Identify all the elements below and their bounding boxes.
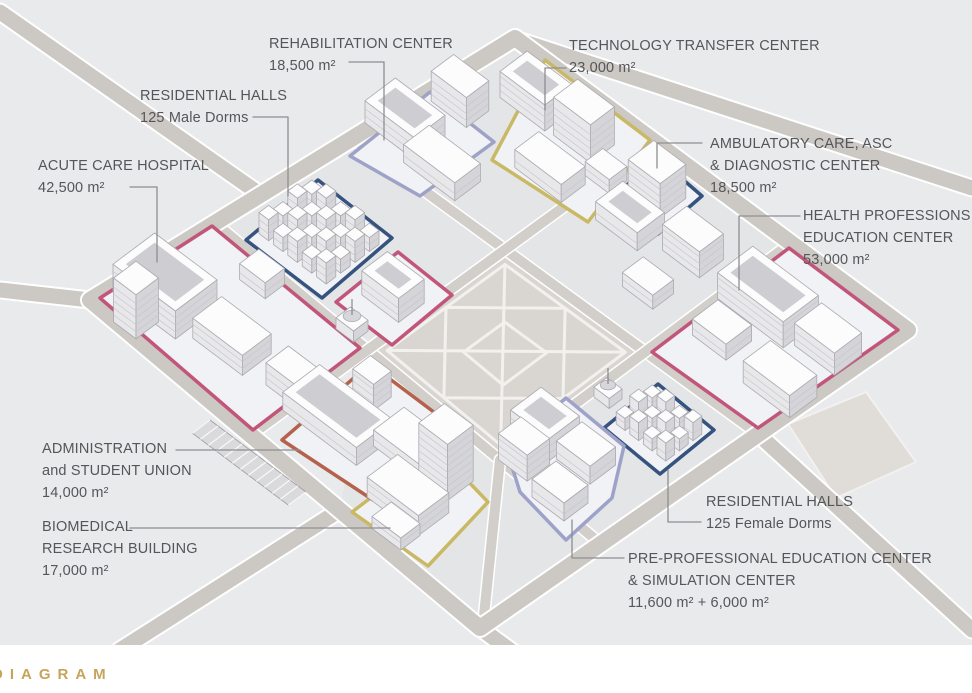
label-acute-care-hospital: ACUTE CARE HOSPITAL 42,500 m² [38,155,209,199]
label-administration-student-union: ADMIN­ISTRATION and STUDENT UNION 14,000… [42,438,192,504]
facility-name: REHABILITATION CENTER [269,33,453,55]
facility-name: ADMIN­ISTRATION [42,438,192,460]
label-technology-transfer-center: TECHNOLOGY TRANSFER CENTER 23,000 m² [569,35,820,79]
facility-name: and STUDENT UNION [42,460,192,482]
label-residential-halls-female: RESIDENTIAL HALLS 125 Female Dorms [706,491,853,535]
facility-area: 18,500 m² [269,55,453,77]
facility-name: & DIAGNOSTIC CENTER [710,155,892,177]
label-pre-professional-simulation: PRE-PROFESSIONAL EDUCATION CENTER & SIMU… [628,548,932,614]
facility-name: BIOMEDICAL [42,516,198,538]
label-ambulatory-care-asc-diagnostic: AMBULATORY CARE, ASC & DIAGNOSTIC CENTER… [710,133,892,199]
facility-area: 42,500 m² [38,177,209,199]
facility-area: 53,000 m² [803,249,971,271]
facility-area: 125 Female Dorms [706,513,853,535]
facility-name: & SIMULATION CENTER [628,570,932,592]
facility-area: 14,000 m² [42,482,192,504]
facility-area: 23,000 m² [569,57,820,79]
facility-area: 11,600 m² + 6,000 m² [628,592,932,614]
label-residential-halls-male: RESIDENTIAL HALLS 125 Male Dorms [140,85,287,129]
paper-margin-strip [0,645,972,693]
facility-area: 18,500 m² [710,177,892,199]
facility-area: 17,000 m² [42,560,198,582]
facility-name: AMBULATORY CARE, ASC [710,133,892,155]
facility-name: EDUCATION CENTER [803,227,971,249]
facility-name: PRE-PROFESSIONAL EDUCATION CENTER [628,548,932,570]
campus-master-plan-diagram: REHABILITATION CENTER 18,500 m² TECHNOLO… [0,0,972,693]
label-biomedical-research-building: BIOMEDICAL RESEARCH BUILDING 17,000 m² [42,516,198,582]
facility-name: ACUTE CARE HOSPITAL [38,155,209,177]
facility-name: RESIDENTIAL HALLS [140,85,287,107]
label-health-professions-education: HEALTH PROFESSIONS EDUCATION CENTER 53,0… [803,205,971,271]
facility-name: TECHNOLOGY TRANSFER CENTER [569,35,820,57]
facility-name: RESEARCH BUILDING [42,538,198,560]
footer-brand-text: DIAGRAM [0,666,113,683]
facility-name: HEALTH PROFESSIONS [803,205,971,227]
facility-area: 125 Male Dorms [140,107,287,129]
facility-name: RESIDENTIAL HALLS [706,491,853,513]
label-rehabilitation-center: REHABILITATION CENTER 18,500 m² [269,33,453,77]
